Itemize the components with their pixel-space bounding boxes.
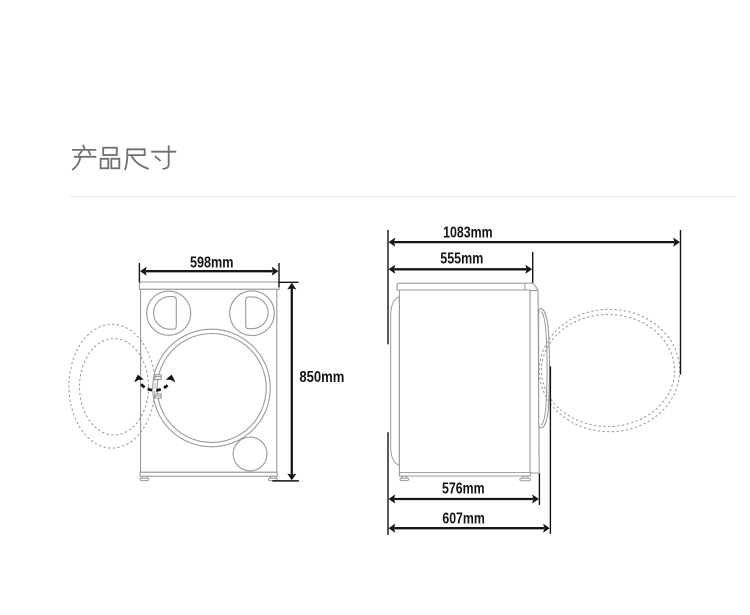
svg-text:598mm: 598mm [190, 254, 234, 271]
svg-text:1083mm: 1083mm [443, 225, 493, 242]
svg-text:607mm: 607mm [442, 511, 485, 528]
svg-text:850mm: 850mm [299, 369, 344, 386]
svg-text:576mm: 576mm [442, 481, 485, 498]
svg-text:555mm: 555mm [440, 251, 483, 268]
